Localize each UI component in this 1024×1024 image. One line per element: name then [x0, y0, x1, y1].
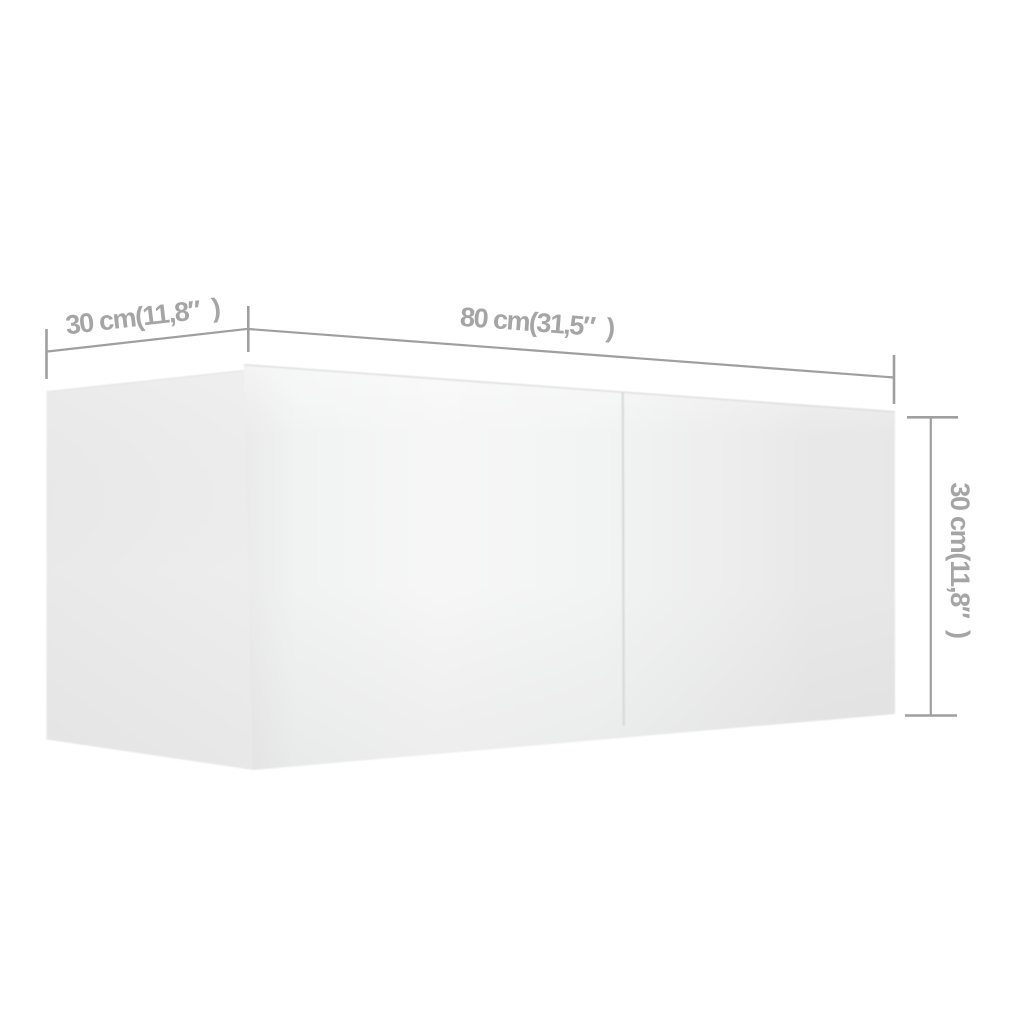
svg-text:30 cm(11,8″ ): 30 cm(11,8″ )	[945, 482, 975, 638]
